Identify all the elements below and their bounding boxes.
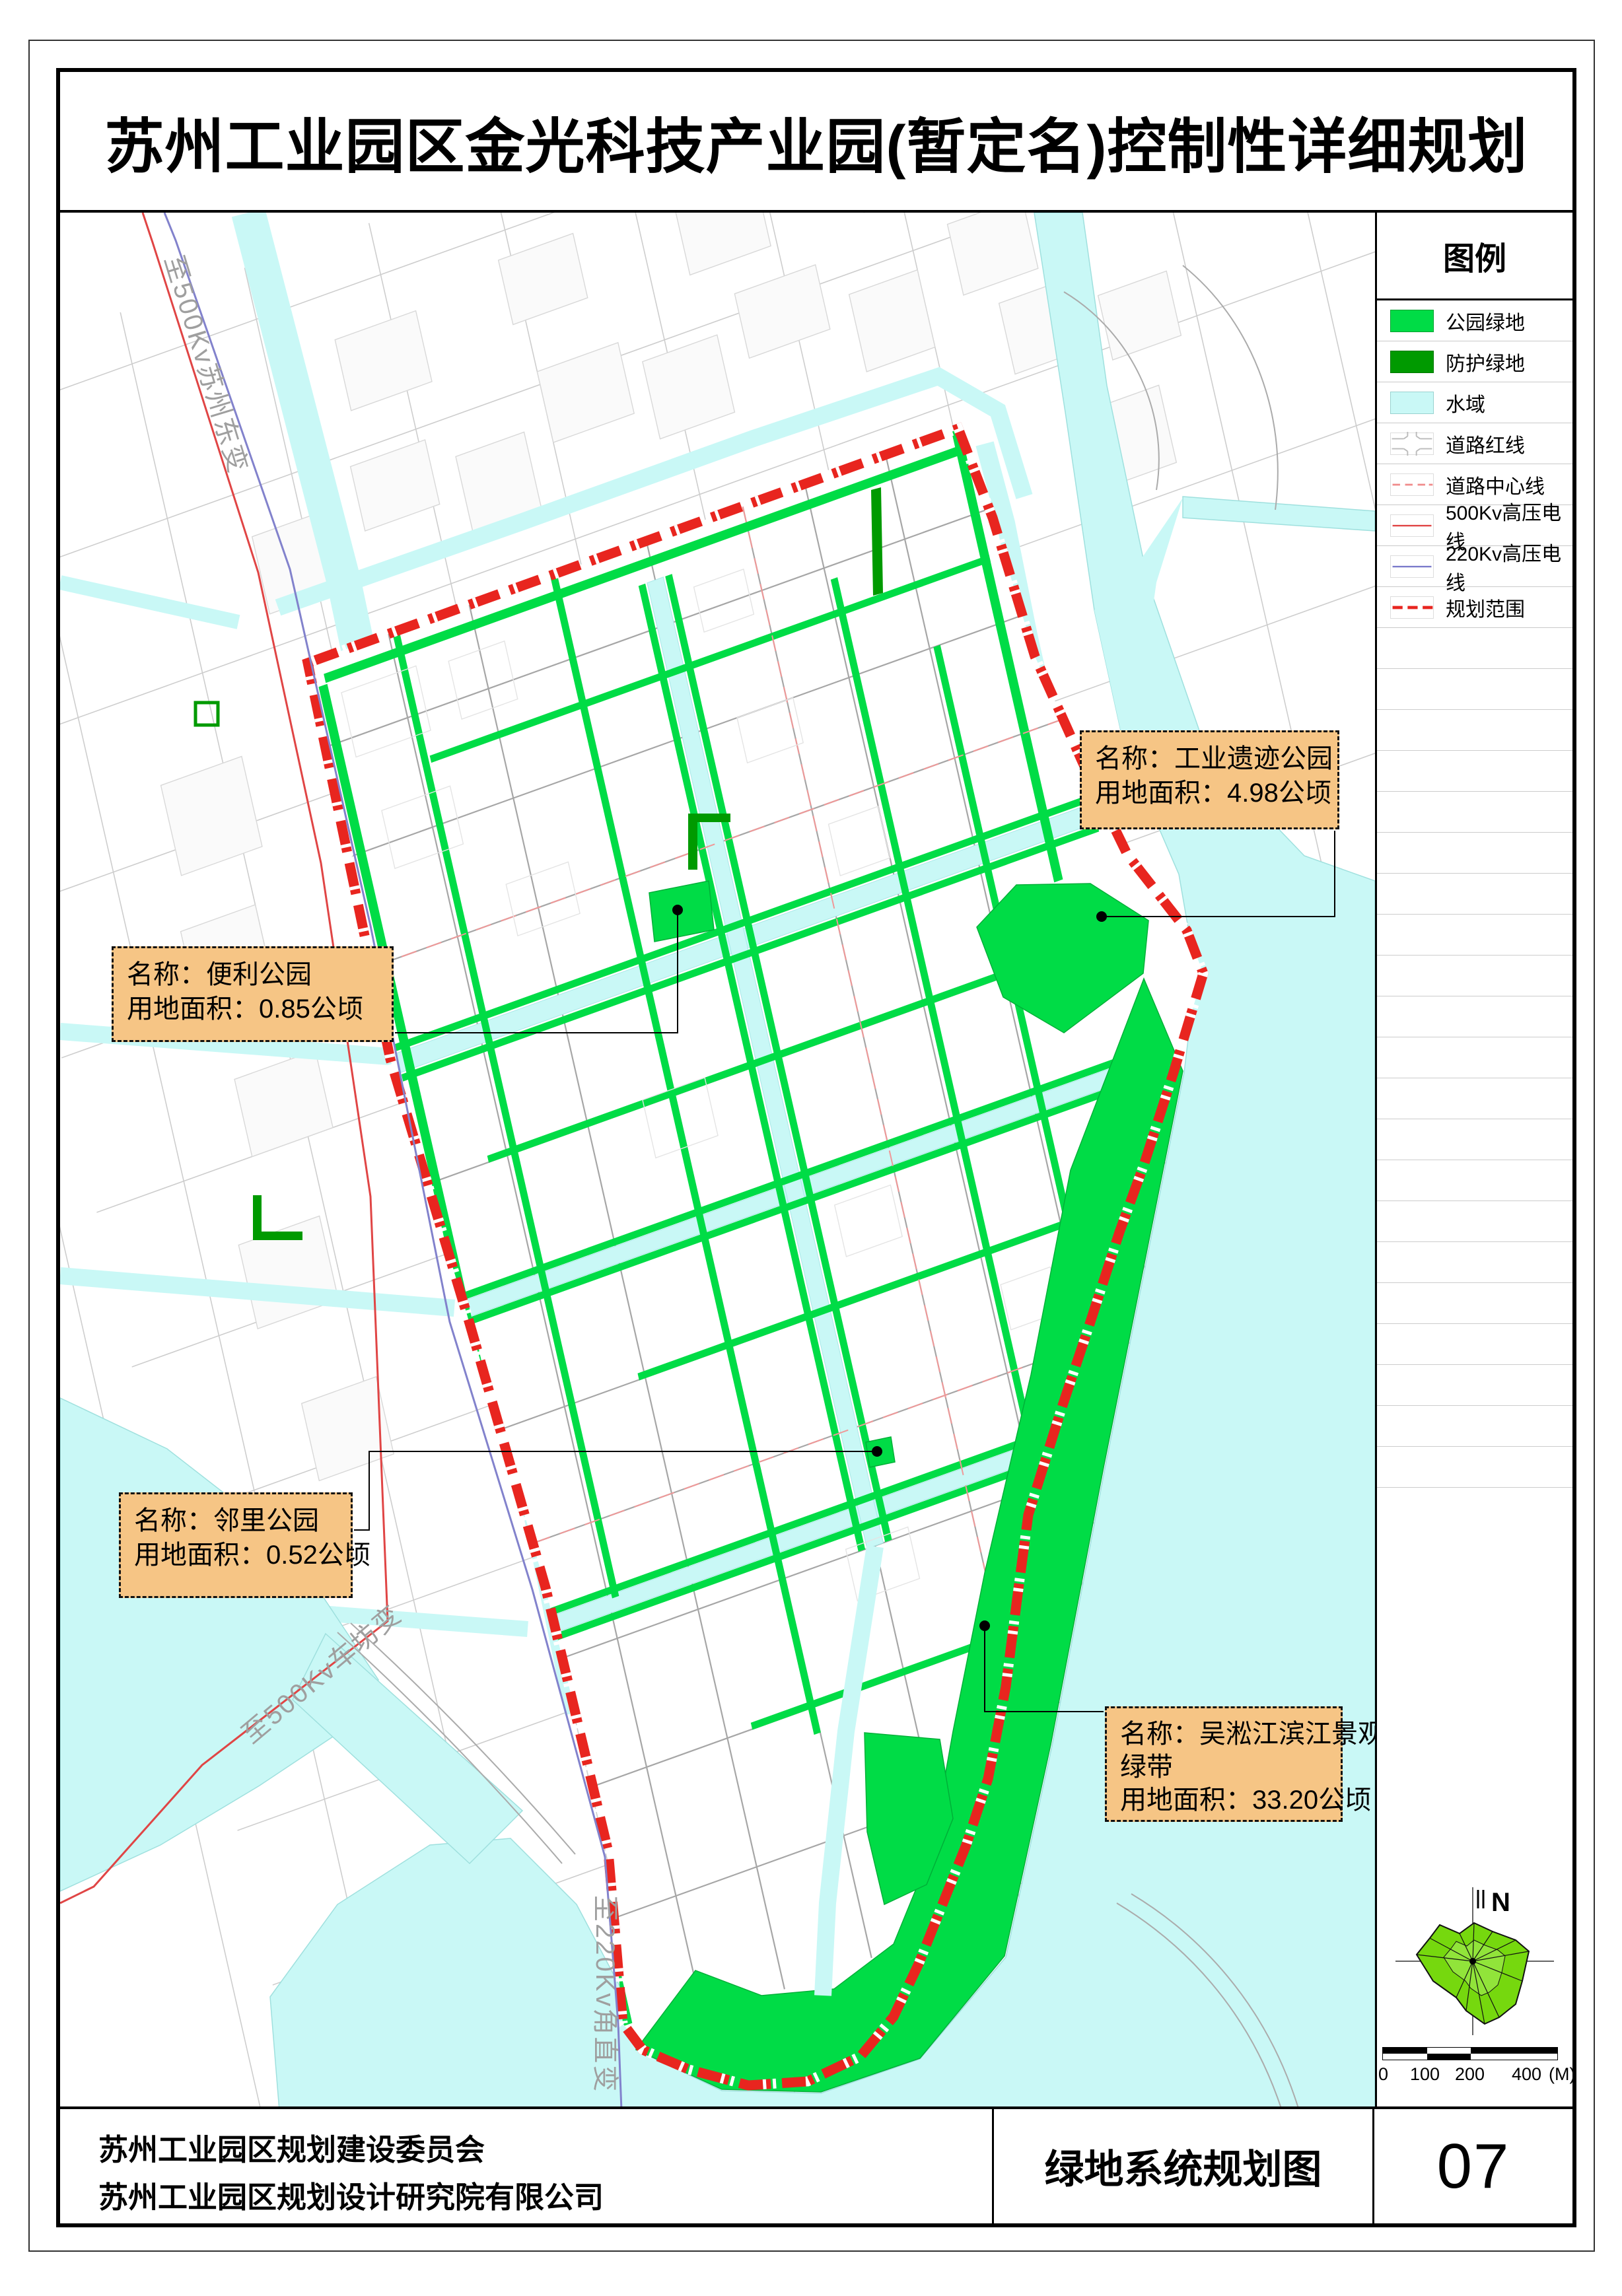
plan-map: 至500Kv苏州东变 至500Kv车坊变 至220Kv角直变: [60, 213, 1375, 2106]
title-bar: 苏州工业园区规划建设委员会 苏州工业园区规划设计研究院有限公司 绿地系统规划图 …: [60, 2106, 1572, 2223]
page-title: 苏州工业园区金光科技产业园(暂定名)控制性详细规划: [105, 98, 1528, 184]
organization-cell: 苏州工业园区规划建设委员会 苏州工业园区规划设计研究院有限公司: [60, 2109, 994, 2223]
label-500kv-northeast: 至500Kv苏州东变: [159, 252, 252, 477]
legend-empty-rows: [1377, 628, 1572, 1488]
drawing-title: 绿地系统规划图: [1045, 2138, 1322, 2195]
scale-unit: (M): [1549, 2064, 1575, 2085]
legend-item-220kv: 220Kv高压电线: [1377, 546, 1572, 587]
sheet-number-cell: 07: [1374, 2109, 1572, 2223]
title-block: 苏州工业园区金光科技产业园(暂定名)控制性详细规划: [60, 72, 1572, 213]
label-220kv-south: 至220Kv角直变: [590, 1895, 619, 2093]
inner-frame: 苏州工业园区金光科技产业园(暂定名)控制性详细规划: [56, 68, 1576, 2227]
sheet-number: 07: [1437, 2130, 1510, 2203]
map-drawing: 至500Kv苏州东变 至500Kv车坊变 至220Kv角直变: [60, 213, 1375, 2106]
organization-line2: 苏州工业园区规划设计研究院有限公司: [98, 2174, 992, 2221]
legend-item-road-redline: 道路红线: [1377, 423, 1572, 464]
scale-tick-0: 0: [1378, 2064, 1388, 2085]
protective-green-swatch: [1390, 351, 1434, 373]
compass-rose: N: [1392, 1882, 1557, 2040]
scale-bar-labels: 0 100 200 400 (M): [1382, 2064, 1558, 2087]
callout-industrial-park: 名称：工业遗迹公园 用地面积：4.98公顷: [1080, 730, 1339, 829]
scale-tick-100: 100: [1410, 2064, 1440, 2085]
drawing-title-cell: 绿地系统规划图: [994, 2109, 1374, 2223]
north-label: N: [1491, 1888, 1510, 1917]
road-centerline-icon: [1390, 473, 1434, 496]
legend-title: 图例: [1377, 213, 1572, 300]
organization-line1: 苏州工业园区规划建设委员会: [98, 2126, 992, 2174]
road-redline-icon: [1390, 433, 1434, 455]
callout-convenience-park: 名称：便利公园 用地面积：0.85公顷: [112, 946, 394, 1042]
callout-neighborhood-park: 名称：邻里公园 用地面积：0.52公顷: [119, 1492, 353, 1598]
callout-riverside-belt: 名称：吴淞江滨江景观 绿带 用地面积：33.20公顷: [1105, 1706, 1343, 1822]
compass-block: N: [1377, 1882, 1572, 2040]
legend-item-protective-green: 防护绿地: [1377, 341, 1572, 382]
power-500kv-icon: [1390, 514, 1434, 537]
legend-item-park-green: 公园绿地: [1377, 300, 1572, 341]
scale-bar: 0 100 200 400 (M): [1382, 2047, 1558, 2087]
planning-scope-icon: [1390, 596, 1434, 619]
plan-sheet: 苏州工业园区金光科技产业园(暂定名)控制性详细规划: [0, 0, 1622, 2296]
power-220kv-icon: [1390, 555, 1434, 578]
scale-tick-400: 400: [1512, 2064, 1541, 2085]
water-swatch: [1390, 392, 1434, 414]
legend-item-water: 水域: [1377, 382, 1572, 423]
park-green-swatch: [1390, 310, 1434, 332]
scale-bar-graphic: [1382, 2047, 1558, 2060]
legend-panel: 图例 公园绿地 防护绿地 水域: [1375, 213, 1572, 2106]
scale-tick-200: 200: [1455, 2064, 1485, 2085]
